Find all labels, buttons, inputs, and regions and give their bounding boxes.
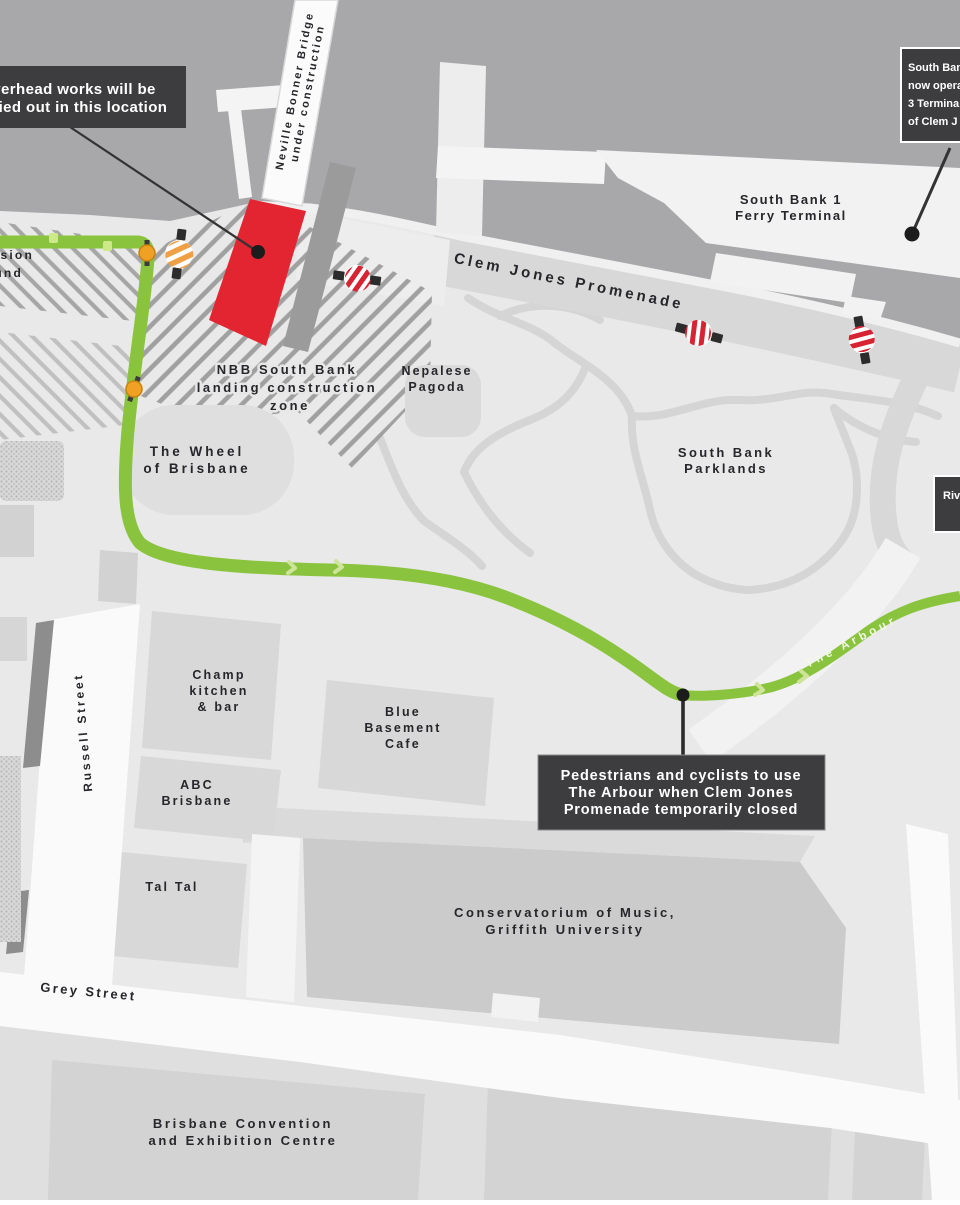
svg-text:Griffith University: Griffith University <box>485 922 644 937</box>
svg-text:ound: ound <box>0 266 23 280</box>
svg-text:NBB South Bank: NBB South Bank <box>217 362 357 377</box>
svg-text:zone: zone <box>270 398 310 413</box>
svg-text:Overhead works will be: Overhead works will be <box>0 81 156 98</box>
svg-text:and Exhibition Centre: and Exhibition Centre <box>149 1133 338 1148</box>
svg-text:Ferry Terminal: Ferry Terminal <box>735 208 847 223</box>
svg-text:Promenade temporarily closed: Promenade temporarily closed <box>564 802 798 818</box>
svg-text:& bar: & bar <box>198 700 241 714</box>
svg-text:of Clem J: of Clem J <box>908 116 958 128</box>
svg-text:ersion: ersion <box>0 248 34 262</box>
svg-text:Pagoda: Pagoda <box>408 380 465 394</box>
svg-text:Nepalese: Nepalese <box>402 364 473 378</box>
svg-text:of Brisbane: of Brisbane <box>143 461 250 476</box>
svg-text:kitchen: kitchen <box>189 684 248 698</box>
svg-text:South Bank: South Bank <box>678 445 774 460</box>
svg-text:Basement: Basement <box>364 721 441 735</box>
svg-text:The Wheel: The Wheel <box>150 444 245 459</box>
svg-text:Riv: Riv <box>943 490 960 502</box>
svg-text:Blue: Blue <box>385 705 421 719</box>
svg-text:3 Termina: 3 Termina <box>908 98 960 110</box>
svg-text:landing construction: landing construction <box>197 380 378 395</box>
svg-text:Conservatorium of Music,: Conservatorium of Music, <box>454 905 676 920</box>
svg-text:Cafe: Cafe <box>385 737 421 751</box>
svg-text:carried out in this location: carried out in this location <box>0 99 167 116</box>
svg-text:now opera: now opera <box>908 80 960 92</box>
svg-text:Brisbane: Brisbane <box>161 794 232 808</box>
svg-text:Pedestrians and cyclists to us: Pedestrians and cyclists to use <box>561 768 802 784</box>
svg-text:South Bank 1: South Bank 1 <box>740 192 842 207</box>
svg-text:The Arbour when Clem Jones: The Arbour when Clem Jones <box>569 785 794 801</box>
svg-text:Parklands: Parklands <box>684 461 768 476</box>
svg-text:Champ: Champ <box>192 668 245 682</box>
svg-text:Brisbane Convention: Brisbane Convention <box>153 1116 333 1131</box>
svg-text:Tal Tal: Tal Tal <box>145 880 198 894</box>
svg-text:ABC: ABC <box>180 778 214 792</box>
svg-text:South Ban: South Ban <box>908 62 960 74</box>
